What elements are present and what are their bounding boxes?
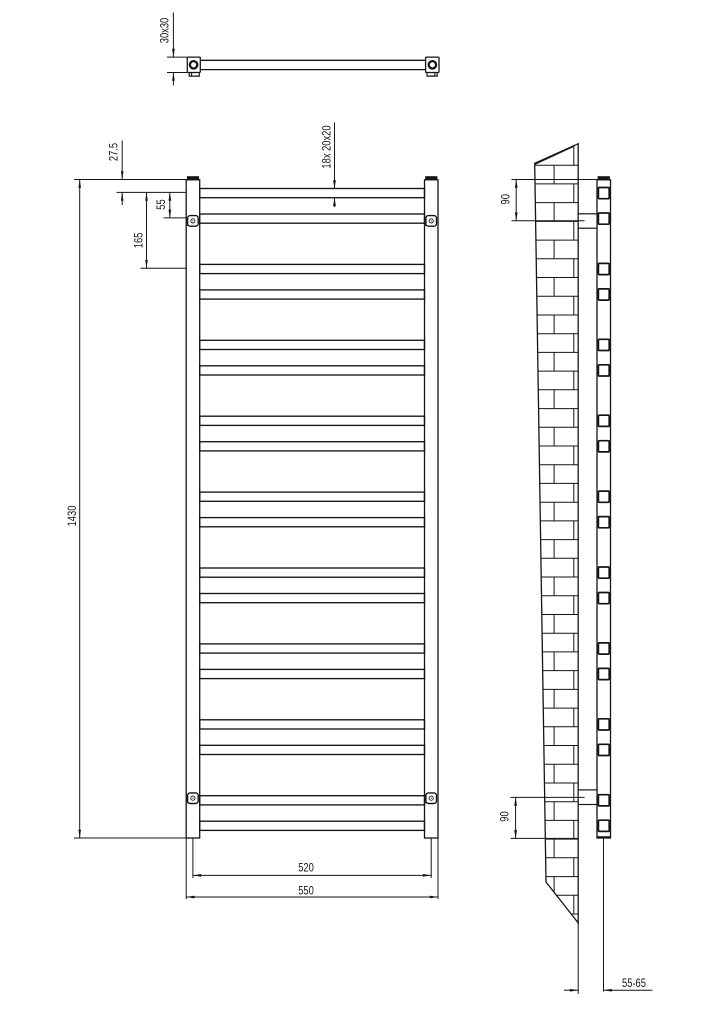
svg-text:30x30: 30x30 (159, 18, 172, 43)
svg-text:55: 55 (155, 199, 168, 209)
svg-text:18x 20x20: 18x 20x20 (320, 125, 333, 168)
svg-text:55-65: 55-65 (622, 977, 646, 990)
svg-text:90: 90 (499, 811, 512, 821)
svg-text:550: 550 (298, 885, 314, 898)
svg-text:165: 165 (132, 233, 145, 249)
svg-text:1430: 1430 (66, 506, 79, 527)
svg-text:27.5: 27.5 (108, 143, 121, 161)
svg-text:520: 520 (298, 861, 314, 874)
svg-text:90: 90 (500, 194, 513, 204)
